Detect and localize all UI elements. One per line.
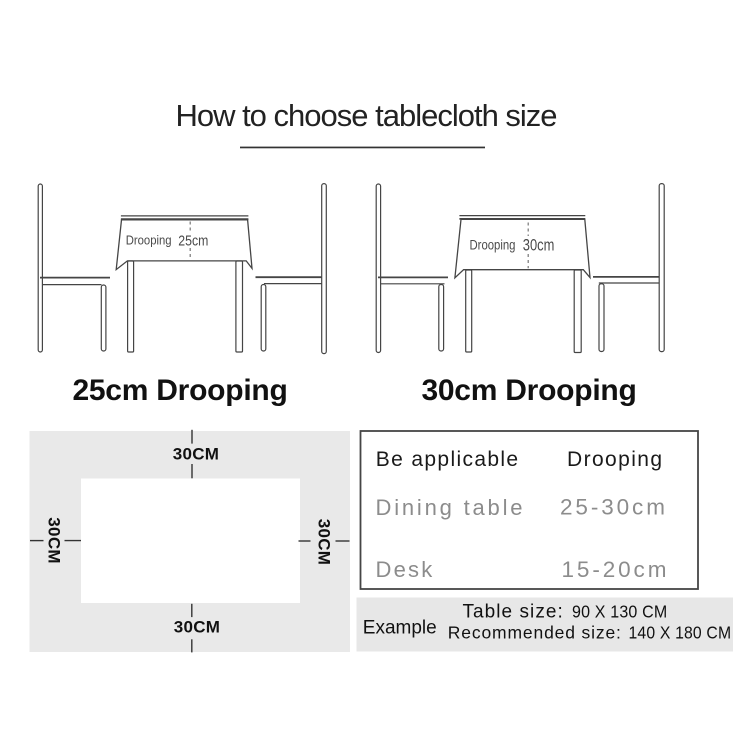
svg-text:90 X 130 CM: 90 X 130 CM [572,602,667,622]
svg-text:30CM: 30CM [45,517,64,564]
svg-text:How to choose tablecloth size: How to choose tablecloth size [175,98,556,133]
svg-text:Desk: Desk [376,557,435,582]
svg-text:Recommended size:: Recommended size: [448,623,622,643]
svg-text:30CM: 30CM [315,519,334,566]
svg-text:Dining table: Dining table [376,495,526,520]
svg-text:Table size:: Table size: [463,602,564,623]
svg-text:25cm: 25cm [178,232,208,248]
svg-text:25-30cm: 25-30cm [560,495,668,520]
svg-text:Drooping: Drooping [126,233,172,248]
svg-text:30cm: 30cm [523,236,555,255]
svg-text:Drooping: Drooping [470,238,516,253]
svg-text:25cm Drooping: 25cm Drooping [72,374,287,407]
svg-text:140 X 180 CM: 140 X 180 CM [629,623,732,643]
svg-text:Example: Example [363,618,437,639]
svg-text:30cm Drooping: 30cm Drooping [421,374,636,407]
svg-text:Be applicable: Be applicable [376,448,520,471]
svg-text:30CM: 30CM [173,444,220,463]
svg-text:30CM: 30CM [174,617,221,636]
svg-text:15-20cm: 15-20cm [562,557,670,582]
svg-text:Drooping: Drooping [567,448,663,471]
